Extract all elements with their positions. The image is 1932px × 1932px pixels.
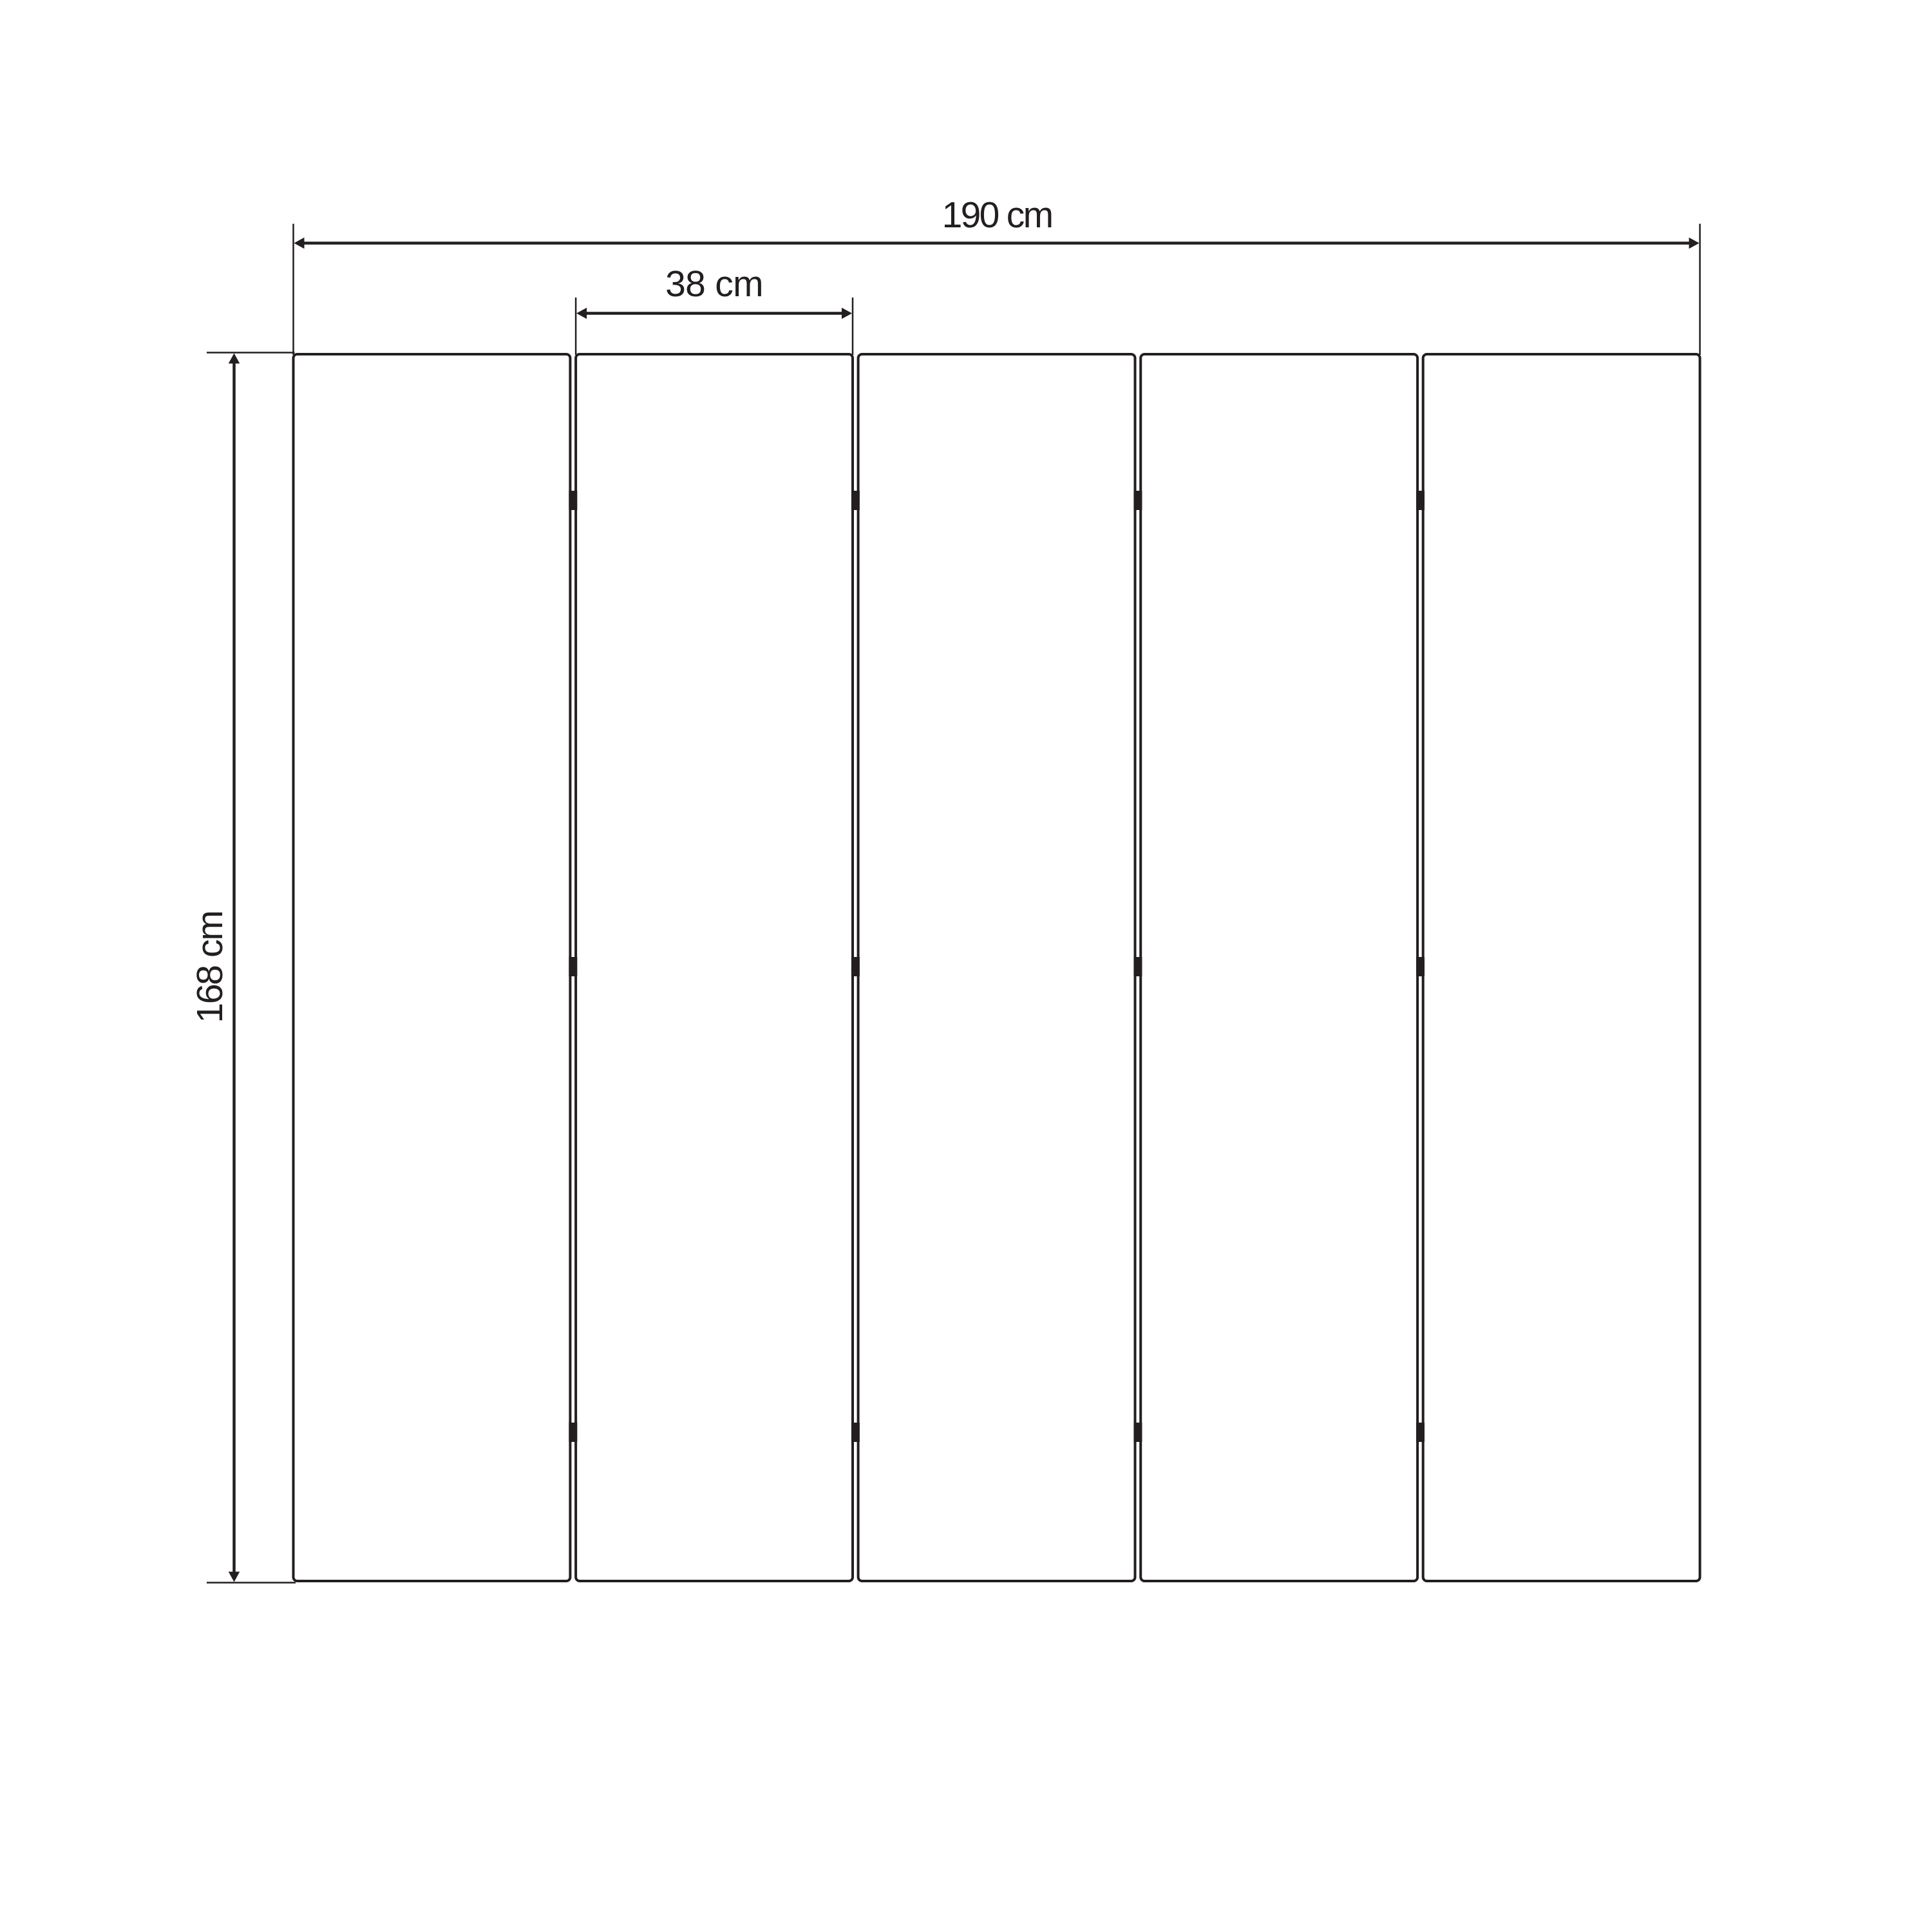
svg-text:190 cm: 190 cm — [942, 194, 1052, 236]
svg-text:38 cm: 38 cm — [665, 263, 763, 305]
svg-text:168 cm: 168 cm — [189, 911, 231, 1023]
